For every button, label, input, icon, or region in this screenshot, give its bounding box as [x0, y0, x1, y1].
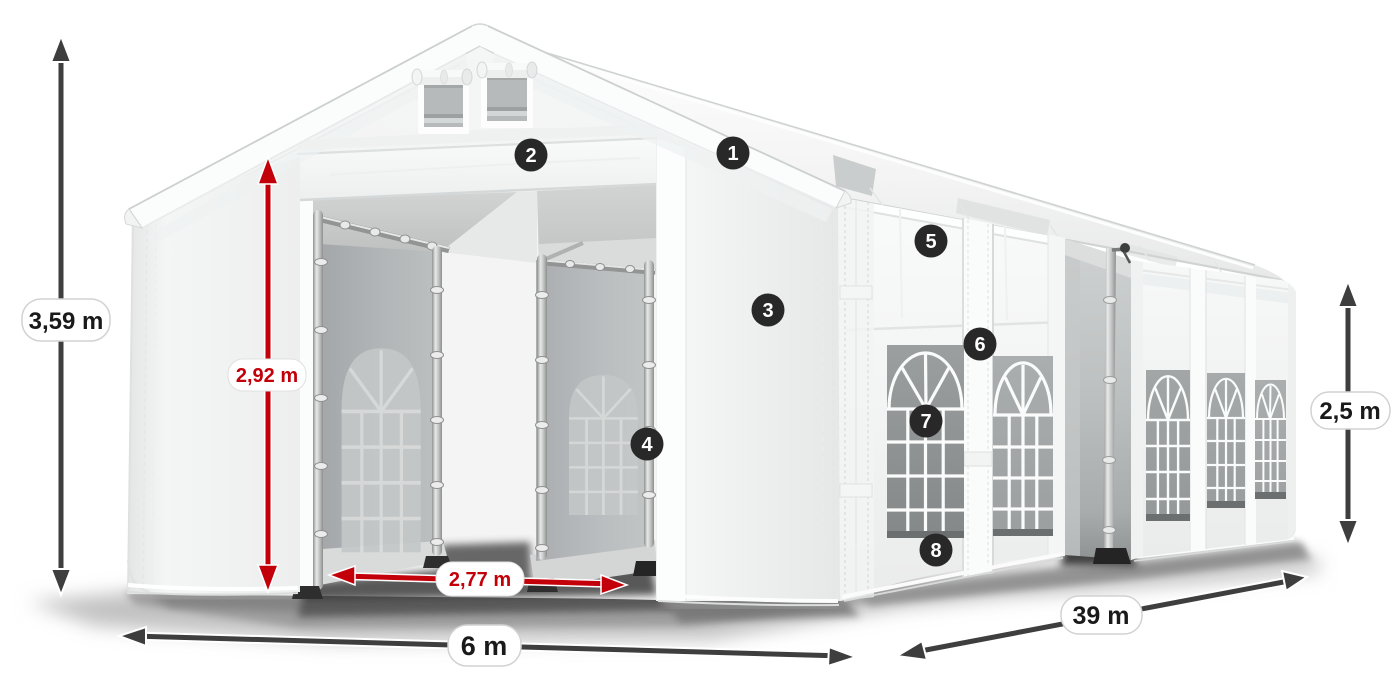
svg-text:4: 4	[641, 434, 653, 456]
svg-text:39 m: 39 m	[1073, 602, 1130, 630]
svg-text:8: 8	[930, 540, 941, 562]
svg-text:5: 5	[925, 231, 936, 253]
svg-text:7: 7	[920, 411, 931, 433]
svg-text:6 m: 6 m	[461, 631, 508, 661]
svg-text:3: 3	[762, 300, 773, 322]
svg-text:2,5 m: 2,5 m	[1319, 398, 1380, 425]
svg-text:6: 6	[974, 334, 985, 356]
svg-text:2,92 m: 2,92 m	[236, 365, 298, 387]
svg-text:1: 1	[727, 143, 738, 165]
svg-text:2,77 m: 2,77 m	[449, 569, 511, 591]
svg-text:3,59 m: 3,59 m	[29, 308, 104, 335]
svg-text:2: 2	[525, 145, 536, 167]
